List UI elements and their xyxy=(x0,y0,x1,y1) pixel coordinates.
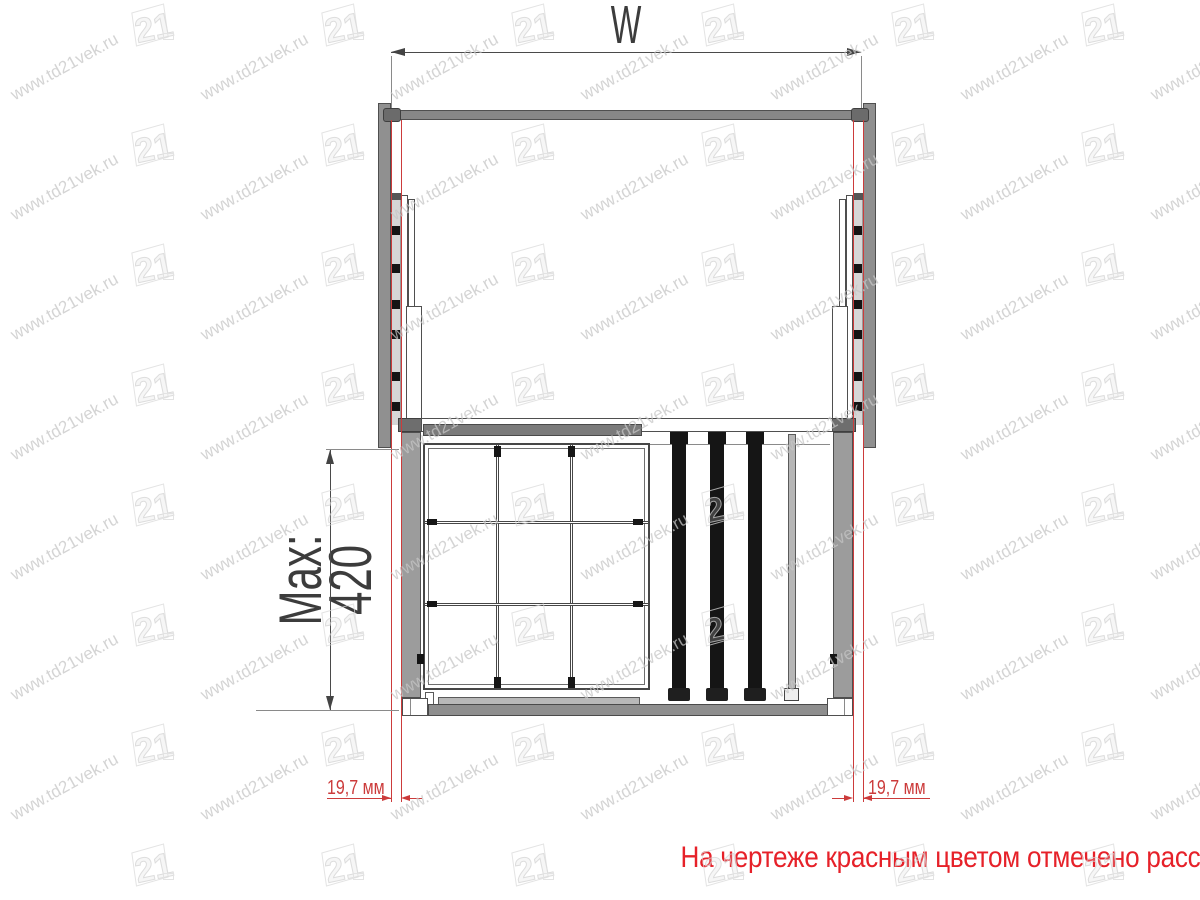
watermark-logo-21: 21 xyxy=(511,362,559,413)
watermark-logo-21: 21 xyxy=(1081,602,1129,653)
watermark-logo: 21 xyxy=(1077,366,1129,412)
width-extension-line-left xyxy=(391,56,392,108)
watermark-logo: 21 xyxy=(317,366,369,412)
watermark-logo-21: 21 xyxy=(891,482,939,533)
watermark-logo-21: 21 xyxy=(511,2,559,53)
watermark-logo-smalltext-block xyxy=(1113,153,1124,160)
watermark-logo-diamond xyxy=(131,483,168,526)
thin-hanger-rail-foot xyxy=(784,688,799,701)
watermark-logo-diamond xyxy=(131,3,168,46)
watermark-logo-21: 21 xyxy=(1081,482,1129,533)
basket-grid-vertical-divider xyxy=(570,445,573,688)
width-extension-line-right xyxy=(861,56,862,108)
basket-grid-horizontal-divider xyxy=(425,521,648,524)
technical-drawing-canvas: W Max: 420 xyxy=(0,0,1200,900)
watermark-logo: 21 xyxy=(127,846,179,892)
right-gap-arrow-tail xyxy=(832,798,844,799)
watermark-logo: 21 xyxy=(887,6,939,52)
watermark-logo-diamond xyxy=(1081,723,1118,766)
basket-grid-horizontal-divider xyxy=(425,603,648,606)
watermark-url-text: www.td21vek.ru xyxy=(7,269,122,345)
watermark-logo-21: 21 xyxy=(701,242,749,293)
watermark-logo-smalltext-block xyxy=(1113,393,1124,400)
watermark-url-text: www.td21vek.ru xyxy=(7,149,122,225)
watermark-url-text: www.td21vek.ru xyxy=(957,29,1072,105)
watermark-logo-smalltext-block xyxy=(543,273,554,280)
watermark-logo-21: 21 xyxy=(321,842,369,893)
depth-dimension-bottom-arrow xyxy=(326,696,334,710)
basket-divider-tick xyxy=(427,519,437,525)
watermark-url-text: www.td21vek.ru xyxy=(1147,269,1200,345)
left-gap-arrow-tail xyxy=(410,798,422,799)
watermark-logo-21: 21 xyxy=(511,242,559,293)
left-rail-wall-clip xyxy=(392,330,400,339)
watermark-logo-smalltext-block xyxy=(163,753,174,760)
watermark-logo-smalltext-block xyxy=(163,633,174,640)
watermark-logo-21: 21 xyxy=(131,122,179,173)
watermark-logo-smalltext-block xyxy=(923,273,934,280)
left-panel-clip xyxy=(417,654,424,664)
hanger-bar-cap xyxy=(670,432,688,444)
watermark-logo-diamond xyxy=(1081,483,1118,526)
watermark-logo-smalltext-block xyxy=(733,513,744,520)
depth-dimension-label: Max: 420 xyxy=(276,496,326,664)
right-gap-dimension-line xyxy=(864,798,930,799)
right-rail-foot xyxy=(829,418,856,432)
watermark-logo-21: 21 xyxy=(321,122,369,173)
watermark-logo: 21 xyxy=(507,846,559,892)
watermark-logo: 21 xyxy=(507,126,559,172)
watermark-logo-diamond xyxy=(321,363,358,406)
watermark-logo-21: 21 xyxy=(131,242,179,293)
watermark-logo-diamond xyxy=(131,243,168,286)
left-rail-wall-clip xyxy=(392,300,400,309)
watermark-logo-smalltext-block xyxy=(163,273,174,280)
watermark-logo-diamond xyxy=(511,243,548,286)
watermark-logo-21: 21 xyxy=(701,722,749,773)
watermark-logo-smalltext-block xyxy=(353,513,364,520)
watermark-logo: 21 xyxy=(317,726,369,772)
watermark-logo-smalltext-block xyxy=(353,273,364,280)
watermark-logo-21: 21 xyxy=(321,2,369,53)
watermark-logo-21: 21 xyxy=(1081,122,1129,173)
watermark-logo: 21 xyxy=(507,6,559,52)
watermark-logo-21: 21 xyxy=(891,242,939,293)
watermark-logo-smalltext-block xyxy=(543,873,554,880)
watermark-logo-smalltext-block xyxy=(733,33,744,40)
watermark-logo: 21 xyxy=(887,486,939,532)
watermark-logo: 21 xyxy=(127,726,179,772)
basket-divider-tick xyxy=(633,519,643,525)
watermark-logo-diamond xyxy=(701,123,738,166)
watermark-url-text: www.td21vek.ru xyxy=(1147,749,1200,825)
watermark-url-text: www.td21vek.ru xyxy=(767,29,882,105)
left-rail-wall-clip xyxy=(392,402,400,411)
watermark-url-text: www.td21vek.ru xyxy=(577,149,692,225)
watermark-logo-smalltext-block xyxy=(1113,273,1124,280)
right-rail-wall-clip xyxy=(854,300,862,309)
left-rail-plate-cap xyxy=(391,193,401,200)
red-gap-line-left-product xyxy=(401,120,402,802)
watermark-logo-diamond xyxy=(1081,363,1118,406)
front-left-corner-bracket xyxy=(402,698,428,716)
basket-divider-tick xyxy=(568,677,575,688)
watermark-logo-diamond xyxy=(131,123,168,166)
watermark-logo-21: 21 xyxy=(701,2,749,53)
watermark-logo-diamond xyxy=(1081,3,1118,46)
right-rail-wall-clip xyxy=(854,264,862,273)
watermark-logo-21: 21 xyxy=(891,122,939,173)
watermark-logo-smalltext-block xyxy=(543,33,554,40)
watermark-logo-diamond xyxy=(321,243,358,286)
watermark-logo-diamond xyxy=(1081,123,1118,166)
watermark-logo-smalltext-block xyxy=(923,153,934,160)
watermark-url-text: www.td21vek.ru xyxy=(197,269,312,345)
watermark-logo-smalltext-block xyxy=(543,393,554,400)
red-gap-line-left-wall xyxy=(391,120,392,802)
watermark-logo: 21 xyxy=(317,6,369,52)
watermark-logo-diamond xyxy=(701,723,738,766)
watermark-logo: 21 xyxy=(317,246,369,292)
watermark-url-text: www.td21vek.ru xyxy=(1147,629,1200,705)
watermark-logo-21: 21 xyxy=(131,2,179,53)
watermark-url-text: www.td21vek.ru xyxy=(1147,29,1200,105)
watermark-logo-smalltext-block xyxy=(1113,633,1124,640)
watermark-logo-diamond xyxy=(511,723,548,766)
watermark-logo: 21 xyxy=(1077,726,1129,772)
watermark-logo-21: 21 xyxy=(891,2,939,53)
watermark-url-text: www.td21vek.ru xyxy=(957,149,1072,225)
watermark-url-text: www.td21vek.ru xyxy=(7,509,122,585)
watermark-logo: 21 xyxy=(1077,246,1129,292)
watermark-logo-diamond xyxy=(511,123,548,166)
watermark-logo-diamond xyxy=(511,3,548,46)
product-front-rail xyxy=(428,704,828,716)
watermark-url-text: www.td21vek.ru xyxy=(957,269,1072,345)
watermark-logo-diamond xyxy=(131,603,168,646)
watermark-logo: 21 xyxy=(887,366,939,412)
right-gap-arrow-in xyxy=(863,795,872,801)
watermark-logo: 21 xyxy=(127,246,179,292)
watermark-logo-diamond xyxy=(891,483,928,526)
watermark-logo-21: 21 xyxy=(701,362,749,413)
watermark-url-text: www.td21vek.ru xyxy=(957,509,1072,585)
right-rail-wall-clip xyxy=(854,372,862,381)
width-dimension-line xyxy=(391,52,861,53)
watermark-logo-diamond xyxy=(701,3,738,46)
watermark-logo-diamond xyxy=(891,123,928,166)
watermark-logo: 21 xyxy=(1077,126,1129,172)
hanger-bar xyxy=(672,432,686,689)
watermark-logo-diamond xyxy=(701,363,738,406)
width-dimension-left-arrow xyxy=(391,48,405,56)
watermark-logo: 21 xyxy=(697,366,749,412)
watermark-logo-21: 21 xyxy=(511,122,559,173)
hanger-bar xyxy=(710,432,724,689)
right-panel-clip xyxy=(830,654,837,664)
watermark-logo-smalltext-block xyxy=(353,753,364,760)
watermark-logo-diamond xyxy=(321,723,358,766)
watermark-url-text: www.td21vek.ru xyxy=(957,629,1072,705)
basket-divider-tick xyxy=(427,601,437,607)
watermark-logo-smalltext-block xyxy=(353,633,364,640)
watermark-logo-diamond xyxy=(891,3,928,46)
front-left-bracket-line xyxy=(410,699,411,715)
watermark-logo-21: 21 xyxy=(891,602,939,653)
right-gap-dimension-label: 19,7 мм xyxy=(868,778,926,798)
watermark-url-text: www.td21vek.ru xyxy=(957,749,1072,825)
depth-extension-line-bottom xyxy=(256,710,399,711)
hanger-bar-foot xyxy=(744,688,766,701)
caption-text: На чертеже красным цветом отмечено расст… xyxy=(681,841,1200,875)
watermark-logo-smalltext-block xyxy=(923,33,934,40)
left-rail-wall-clip xyxy=(392,372,400,381)
wire-basket-inner-frame xyxy=(428,448,645,685)
basket-divider-tick xyxy=(494,677,501,688)
watermark-logo-diamond xyxy=(891,243,928,286)
watermark-logo-smalltext-block xyxy=(163,873,174,880)
watermark-logo: 21 xyxy=(697,246,749,292)
width-dimension-label: W xyxy=(586,0,665,52)
watermark-logo-smalltext-block xyxy=(1113,513,1124,520)
watermark-logo-21: 21 xyxy=(131,482,179,533)
watermark-logo-21: 21 xyxy=(701,482,749,533)
watermark-logo: 21 xyxy=(127,366,179,412)
watermark-logo-21: 21 xyxy=(131,362,179,413)
watermark-logo-diamond xyxy=(321,123,358,166)
hanger-bar-foot xyxy=(706,688,728,701)
watermark-logo-21: 21 xyxy=(891,362,939,413)
watermark-logo: 21 xyxy=(507,246,559,292)
watermark-url-text: www.td21vek.ru xyxy=(1147,389,1200,465)
watermark-url-text: www.td21vek.ru xyxy=(577,749,692,825)
basket-divider-tick xyxy=(494,446,501,457)
watermark-logo-smalltext-block xyxy=(733,153,744,160)
watermark-logo-diamond xyxy=(891,723,928,766)
watermark-logo-21: 21 xyxy=(321,722,369,773)
thin-hanger-rail xyxy=(788,434,796,689)
watermark-logo-21: 21 xyxy=(1081,2,1129,53)
hanger-bar-foot xyxy=(668,688,690,701)
left-rail-wall-clip xyxy=(392,264,400,273)
depth-extension-line-top xyxy=(326,449,399,450)
watermark-logo-smalltext-block xyxy=(733,753,744,760)
right-rail-carriage xyxy=(832,306,848,421)
watermark-logo-smalltext-block xyxy=(353,873,364,880)
cabinet-right-wall xyxy=(863,103,876,448)
watermark-url-text: www.td21vek.ru xyxy=(767,509,882,585)
watermark-logo: 21 xyxy=(887,726,939,772)
watermark-logo-diamond xyxy=(1081,243,1118,286)
watermark-logo-smalltext-block xyxy=(1113,753,1124,760)
watermark-logo-smalltext-block xyxy=(733,273,744,280)
back-panel-left-cap xyxy=(383,108,401,122)
watermark-url-text: www.td21vek.ru xyxy=(1147,149,1200,225)
watermark-logo: 21 xyxy=(887,246,939,292)
depth-dimension-top-arrow xyxy=(326,450,334,464)
watermark-url-text: www.td21vek.ru xyxy=(7,29,122,105)
watermark-logo: 21 xyxy=(127,606,179,652)
watermark-url-text: www.td21vek.ru xyxy=(197,149,312,225)
right-gap-arrow-out xyxy=(844,795,853,801)
watermark-url-text: www.td21vek.ru xyxy=(7,389,122,465)
width-dimension-right-arrow xyxy=(847,48,861,56)
watermark-logo-21: 21 xyxy=(701,602,749,653)
watermark-logo-smalltext-block xyxy=(543,153,554,160)
watermark-logo: 21 xyxy=(1077,6,1129,52)
right-rail-wall-clip xyxy=(854,330,862,339)
watermark-logo-smalltext-block xyxy=(163,393,174,400)
left-gap-arrow-in xyxy=(382,795,391,801)
watermark-logo-diamond xyxy=(131,843,168,886)
watermark-logo-smalltext-block xyxy=(733,393,744,400)
left-rail-inner-profile xyxy=(408,199,415,307)
left-rail-wall-clip xyxy=(392,226,400,235)
watermark-logo-smalltext-block xyxy=(353,393,364,400)
watermark-logo-diamond xyxy=(891,603,928,646)
watermark-logo: 21 xyxy=(697,126,749,172)
watermark-logo-smalltext-block xyxy=(923,393,934,400)
left-rail-carriage xyxy=(406,306,422,421)
left-gap-dimension-label: 19,7 мм xyxy=(327,778,385,798)
watermark-url-text: www.td21vek.ru xyxy=(197,29,312,105)
right-rail-wall-clip xyxy=(854,402,862,411)
hanger-bar xyxy=(748,432,762,689)
depth-dimension-line xyxy=(330,450,331,711)
watermark-logo-diamond xyxy=(1081,603,1118,646)
watermark-logo-21: 21 xyxy=(321,242,369,293)
basket-divider-tick xyxy=(633,601,643,607)
watermark-logo-21: 21 xyxy=(131,842,179,893)
watermark-logo-21: 21 xyxy=(1081,242,1129,293)
watermark-logo-21: 21 xyxy=(701,122,749,173)
watermark-logo-smalltext-block xyxy=(1113,33,1124,40)
watermark-logo: 21 xyxy=(317,126,369,172)
watermark-logo-smalltext-block xyxy=(163,33,174,40)
right-rail-inner-profile xyxy=(839,199,846,307)
watermark-logo: 21 xyxy=(127,6,179,52)
left-gap-arrow-out xyxy=(401,795,410,801)
watermark-logo-21: 21 xyxy=(891,722,939,773)
watermark-logo-21: 21 xyxy=(1081,362,1129,413)
cabinet-left-wall xyxy=(378,103,391,448)
watermark-url-text: www.td21vek.ru xyxy=(197,749,312,825)
watermark-url-text: www.td21vek.ru xyxy=(767,749,882,825)
watermark-logo-smalltext-block xyxy=(923,633,934,640)
watermark-logo-smalltext-block xyxy=(353,33,364,40)
red-gap-line-right-product xyxy=(853,120,854,802)
watermark-logo-diamond xyxy=(321,3,358,46)
watermark-logo-21: 21 xyxy=(1081,722,1129,773)
watermark-logo-smalltext-block xyxy=(163,153,174,160)
watermark-logo-smalltext-block xyxy=(353,153,364,160)
watermark-logo-diamond xyxy=(131,723,168,766)
right-rail-wall-clip xyxy=(854,226,862,235)
front-right-corner-bracket xyxy=(827,698,853,716)
watermark-logo-diamond xyxy=(701,243,738,286)
watermark-logo-diamond xyxy=(321,483,358,526)
watermark-logo: 21 xyxy=(887,606,939,652)
watermark-logo-smalltext-block xyxy=(923,753,934,760)
red-gap-line-right-wall xyxy=(863,120,864,802)
watermark-url-text: www.td21vek.ru xyxy=(1147,509,1200,585)
watermark-logo-smalltext-block xyxy=(923,513,934,520)
basket-divider-tick xyxy=(568,446,575,457)
watermark-logo-diamond xyxy=(511,363,548,406)
basket-grid-vertical-divider xyxy=(496,445,499,688)
watermark-logo-21: 21 xyxy=(511,722,559,773)
watermark-logo: 21 xyxy=(1077,606,1129,652)
watermark-logo-diamond xyxy=(131,363,168,406)
hanger-bar-cap xyxy=(708,432,726,444)
watermark-url-text: www.td21vek.ru xyxy=(7,629,122,705)
watermark-logo-smalltext-block xyxy=(163,513,174,520)
watermark-logo-21: 21 xyxy=(511,842,559,893)
watermark-logo-smalltext-block xyxy=(543,753,554,760)
watermark-logo: 21 xyxy=(127,126,179,172)
watermark-logo: 21 xyxy=(697,726,749,772)
watermark-logo: 21 xyxy=(697,6,749,52)
watermark-logo: 21 xyxy=(127,486,179,532)
basket-back-rail xyxy=(423,424,642,436)
watermark-url-text: www.td21vek.ru xyxy=(957,389,1072,465)
watermark-url-text: www.td21vek.ru xyxy=(387,29,502,105)
watermark-logo-21: 21 xyxy=(321,482,369,533)
watermark-logo-21: 21 xyxy=(131,602,179,653)
front-right-bracket-line xyxy=(844,699,845,715)
watermark-url-text: www.td21vek.ru xyxy=(197,389,312,465)
watermark-url-text: www.td21vek.ru xyxy=(387,749,502,825)
watermark-logo: 21 xyxy=(507,366,559,412)
watermark-logo-diamond xyxy=(511,843,548,886)
watermark-logo-21: 21 xyxy=(131,722,179,773)
watermark-logo: 21 xyxy=(1077,486,1129,532)
watermark-logo-smalltext-block xyxy=(733,633,744,640)
watermark-logo-21: 21 xyxy=(321,362,369,413)
watermark-logo-diamond xyxy=(891,363,928,406)
watermark-url-text: www.td21vek.ru xyxy=(577,269,692,345)
watermark-url-text: www.td21vek.ru xyxy=(7,749,122,825)
cabinet-back-panel xyxy=(391,110,863,120)
right-rail-plate-cap xyxy=(853,193,863,200)
hanger-bar-cap xyxy=(746,432,764,444)
watermark-logo: 21 xyxy=(507,726,559,772)
watermark-logo-diamond xyxy=(321,843,358,886)
watermark-logo: 21 xyxy=(317,846,369,892)
watermark-logo: 21 xyxy=(887,126,939,172)
